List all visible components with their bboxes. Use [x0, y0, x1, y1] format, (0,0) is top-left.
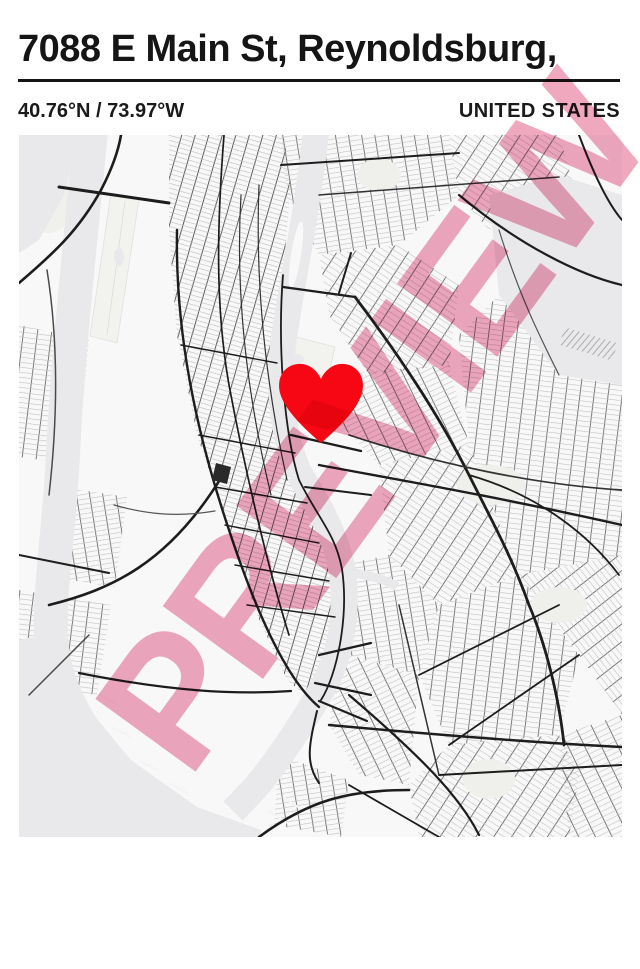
- title-underline: [18, 79, 620, 82]
- coordinates-label: 40.76°N / 73.97°W: [18, 100, 184, 123]
- map-canvas: [19, 135, 622, 837]
- page-title: 7088 E Main St, Reynoldsburg,: [18, 28, 622, 71]
- map-poster-preview: 7088 E Main St, Reynoldsburg, 40.76°N / …: [0, 0, 640, 857]
- country-label: UNITED STATES: [459, 100, 620, 123]
- subtitle-row: 40.76°N / 73.97°W UNITED STATES: [18, 100, 620, 123]
- street-map: [19, 135, 622, 837]
